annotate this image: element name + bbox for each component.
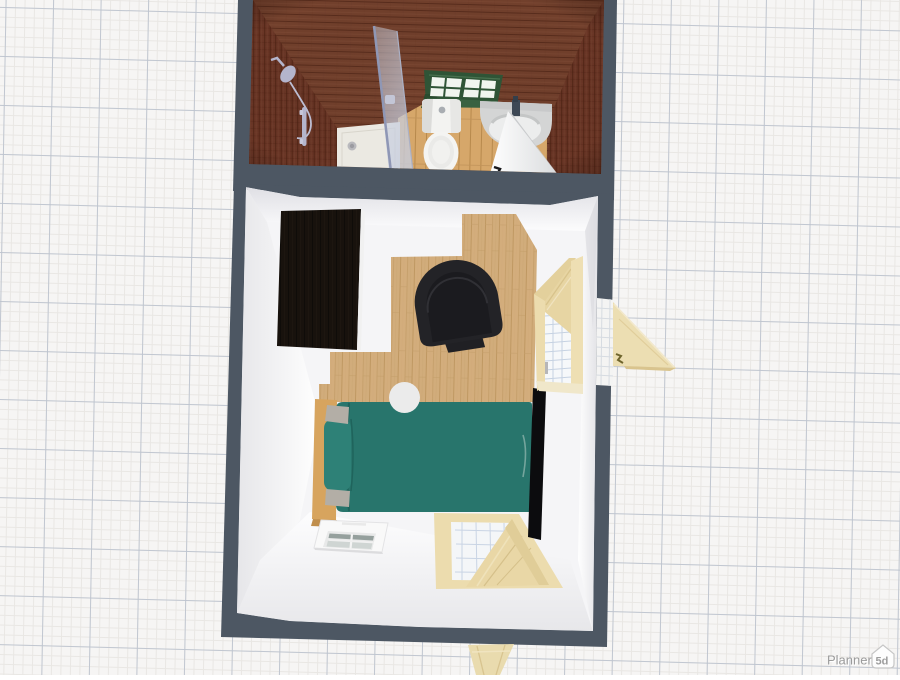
svg-text:5d: 5d	[876, 656, 889, 668]
svg-text:Planner: Planner	[827, 653, 872, 668]
